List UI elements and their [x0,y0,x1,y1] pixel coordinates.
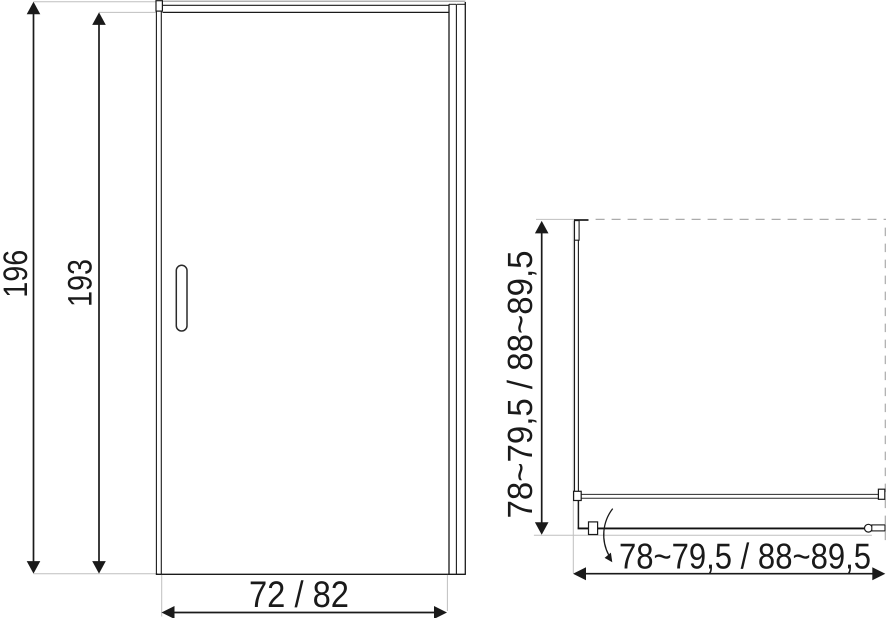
svg-text:196: 196 [0,250,35,298]
svg-text:78~79,5 / 88~89,5: 78~79,5 / 88~89,5 [619,536,871,577]
svg-text:193: 193 [61,259,99,307]
svg-text:72 / 82: 72 / 82 [249,574,349,615]
svg-text:78~79,5 / 88~89,5: 78~79,5 / 88~89,5 [501,251,540,519]
